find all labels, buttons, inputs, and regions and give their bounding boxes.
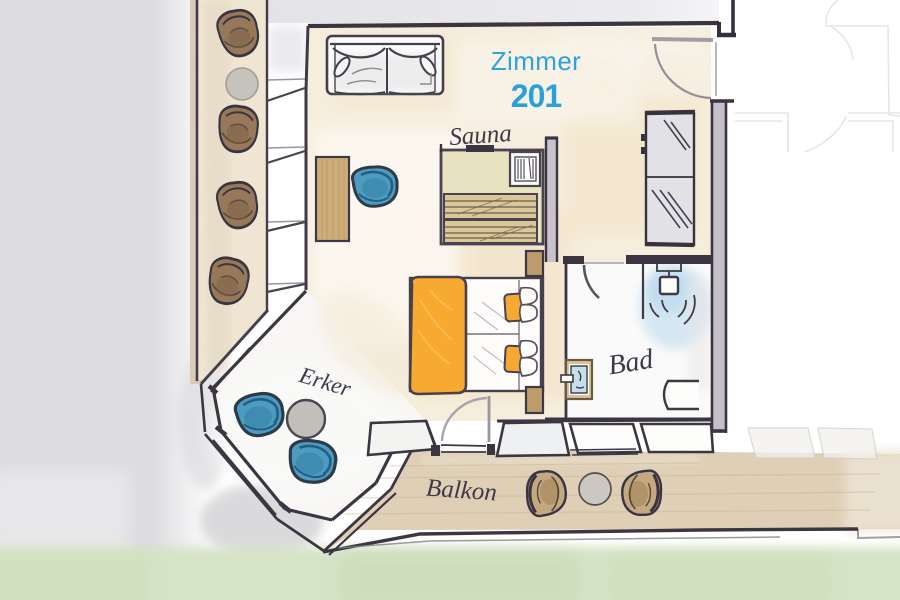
- svg-text:Zimmer: Zimmer: [491, 46, 582, 76]
- svg-text:Sauna: Sauna: [448, 120, 512, 151]
- svg-text:201: 201: [511, 78, 562, 114]
- svg-text:Balkon: Balkon: [425, 475, 498, 507]
